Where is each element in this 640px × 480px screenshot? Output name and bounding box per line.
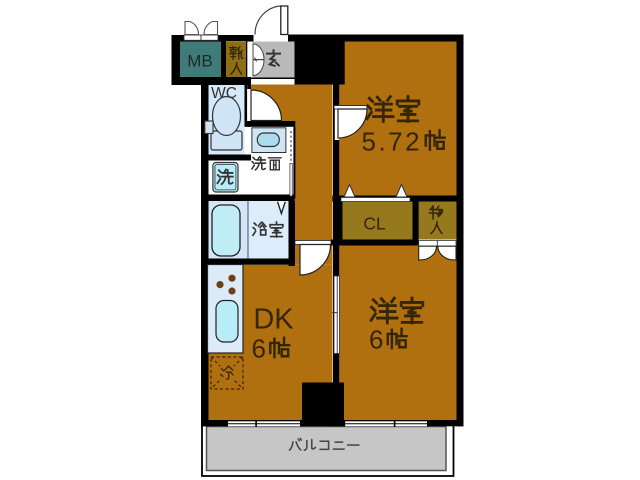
- svg-text:6: 6: [252, 334, 266, 364]
- svg-text:DK: DK: [253, 304, 294, 336]
- svg-text:MB: MB: [187, 52, 213, 71]
- svg-text:5.72: 5.72: [362, 127, 423, 157]
- svg-text:6: 6: [369, 325, 383, 355]
- svg-text:CL: CL: [363, 214, 386, 234]
- svg-text:WC: WC: [211, 85, 237, 102]
